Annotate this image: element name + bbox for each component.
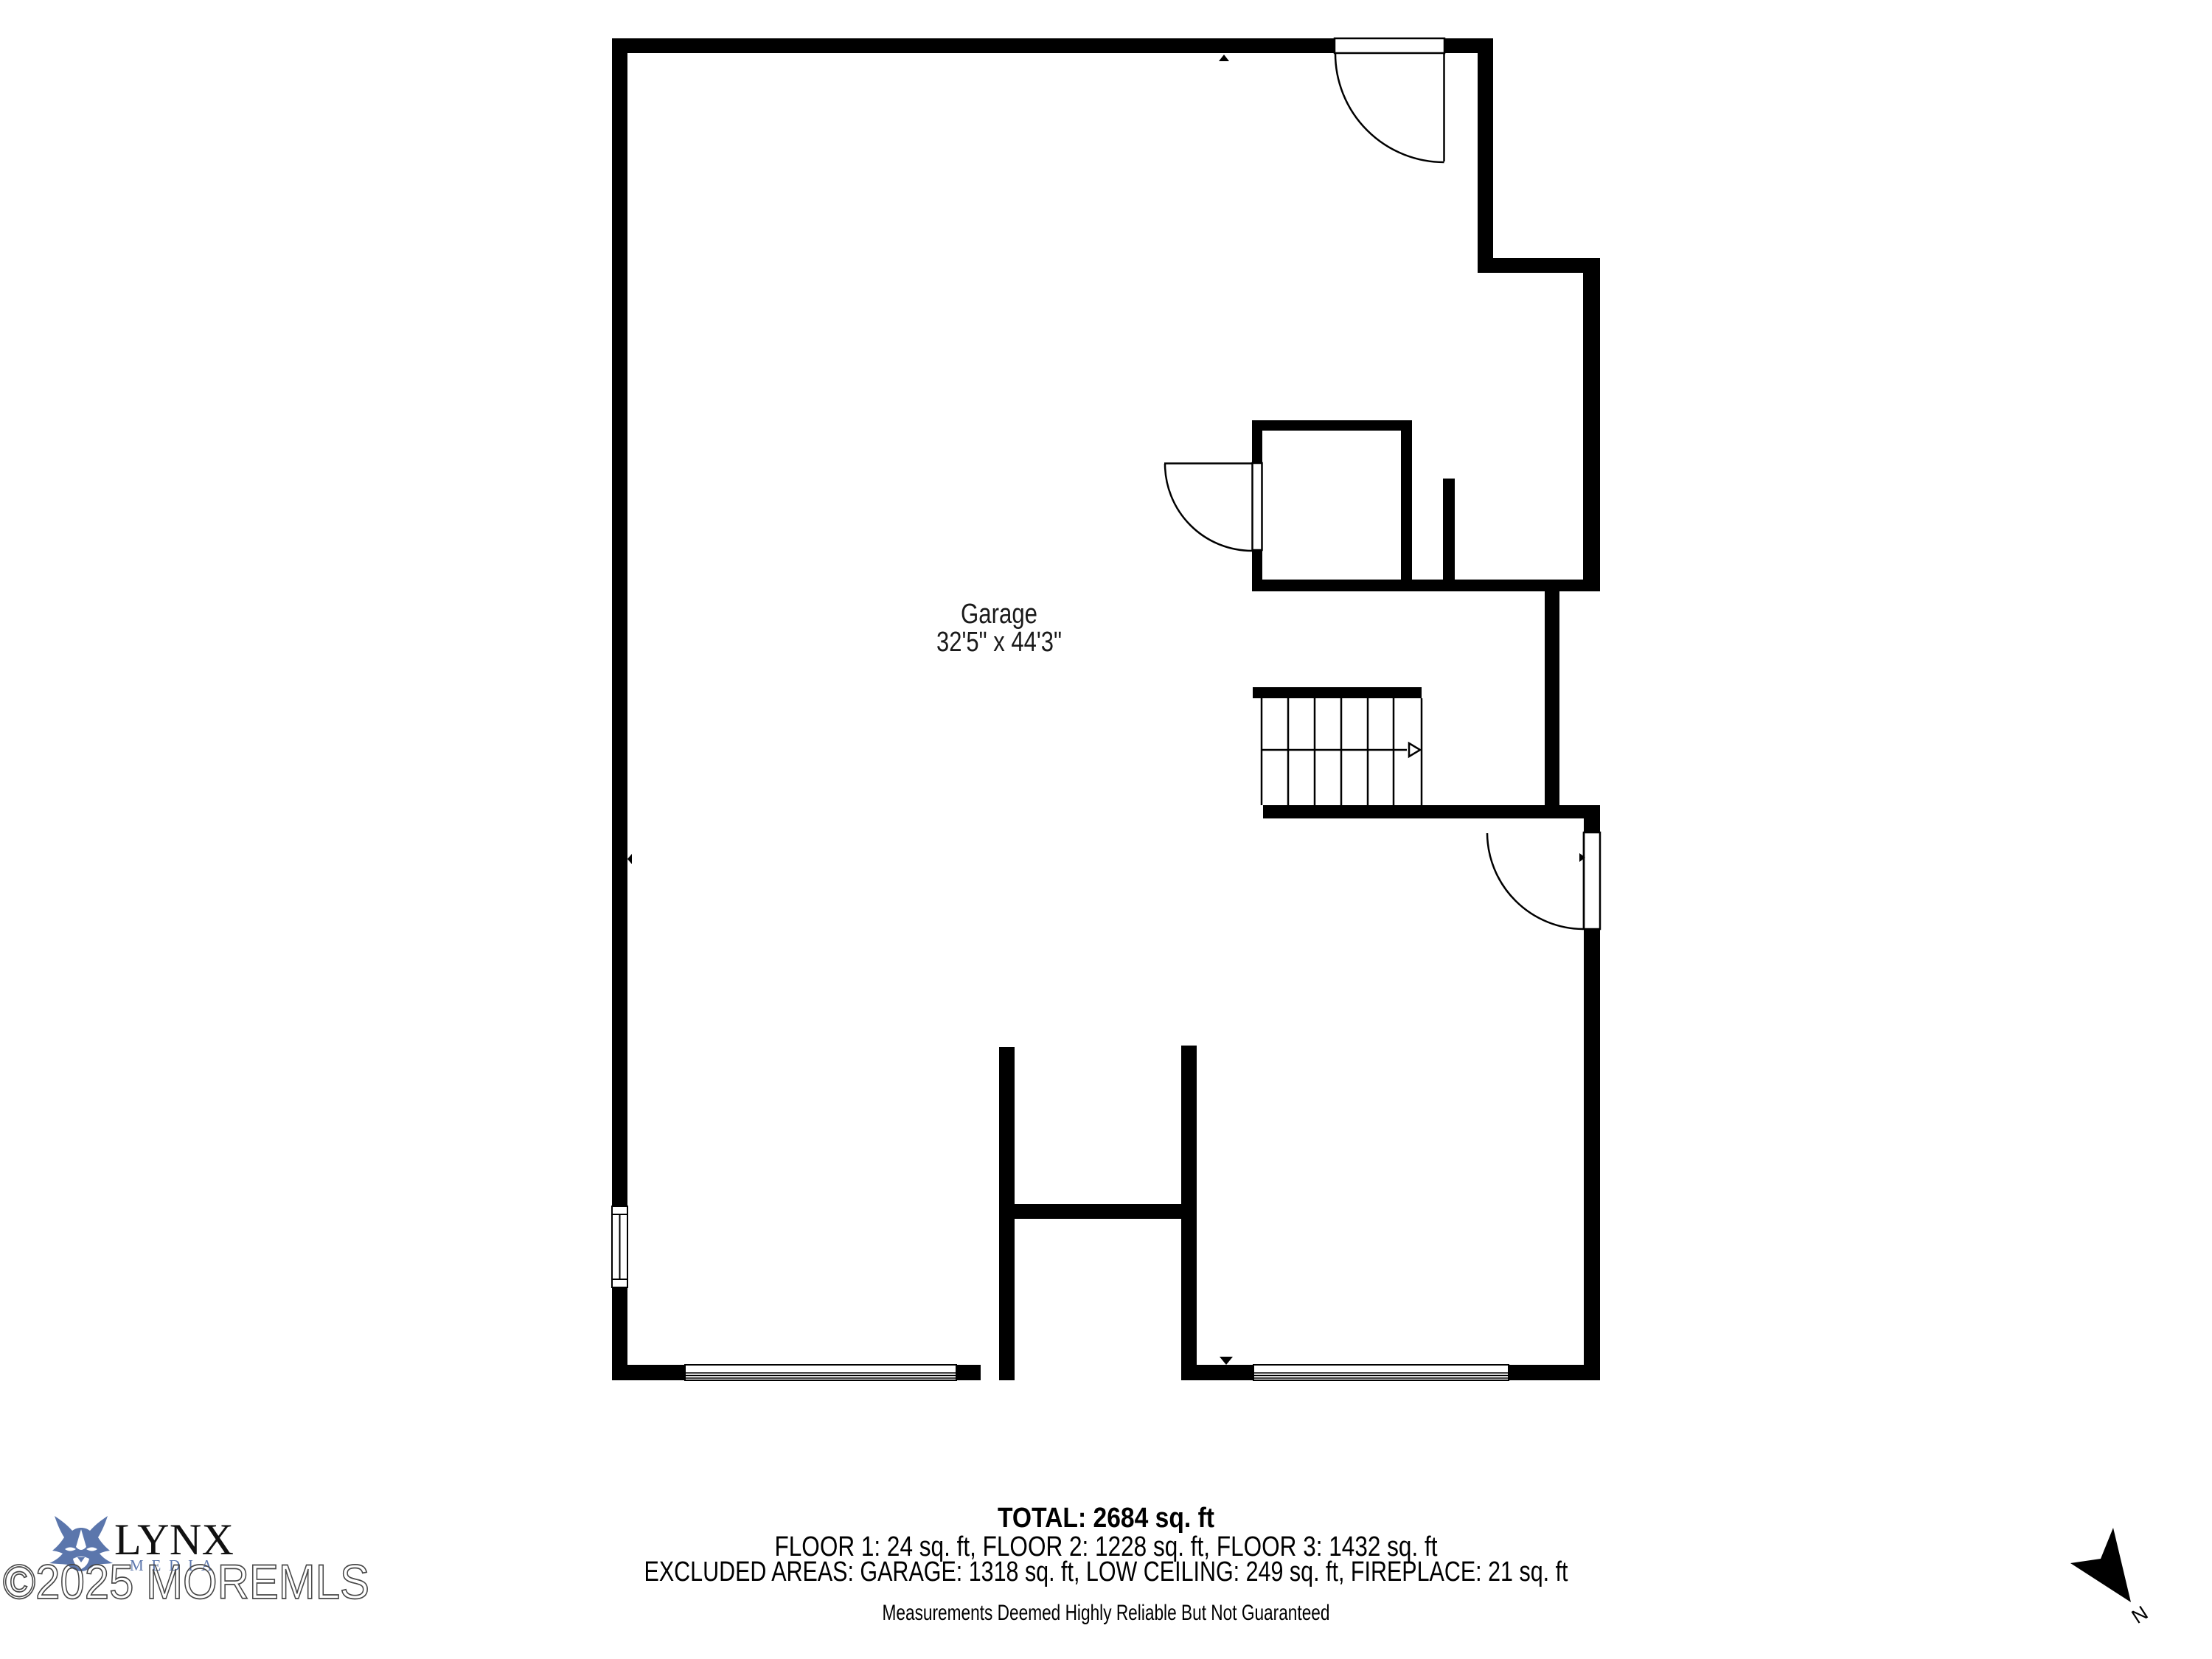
svg-text:EXCLUDED AREAS: GARAGE: 1318 s: EXCLUDED AREAS: GARAGE: 1318 sq. ft, LOW… <box>644 1557 1568 1587</box>
svg-text:Garage: Garage <box>961 599 1037 630</box>
svg-text:©2025 MOREMLS: ©2025 MOREMLS <box>3 1554 369 1609</box>
svg-text:Measurements Deemed Highly Rel: Measurements Deemed Highly Reliable But … <box>883 1601 1330 1625</box>
svg-text:32'5" x 44'3": 32'5" x 44'3" <box>936 627 1062 658</box>
svg-text:TOTAL: 2684 sq. ft: TOTAL: 2684 sq. ft <box>998 1503 1214 1534</box>
